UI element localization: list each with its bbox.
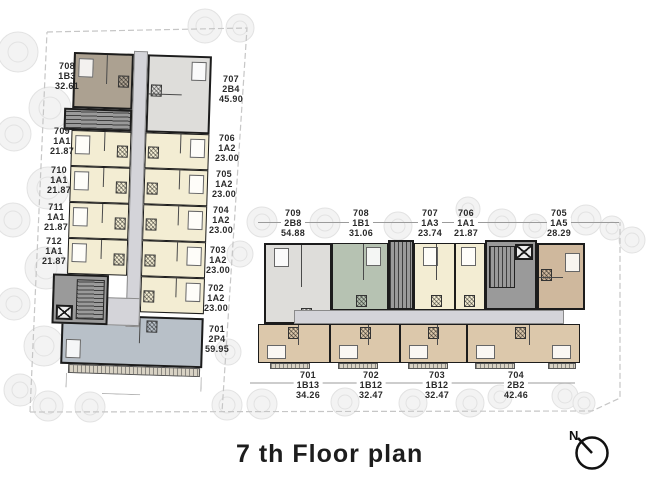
unit-712-plan xyxy=(67,238,128,276)
wing-elevator-core xyxy=(485,240,537,310)
unit-type: 2B4 xyxy=(219,84,243,94)
unit-703L-plan xyxy=(141,240,206,278)
unit-area: 54.88 xyxy=(281,228,305,238)
unit-type: 1B1 xyxy=(349,218,373,228)
page-title: 7 th Floor plan xyxy=(236,440,423,469)
unit-type: 1A2 xyxy=(204,293,228,303)
unit-no: 707 xyxy=(219,74,243,84)
unit-type: 1A2 xyxy=(215,143,239,153)
unit-area: 21.87 xyxy=(47,185,71,195)
left-tower xyxy=(63,52,212,396)
unit-area: 21.87 xyxy=(50,146,74,156)
unit-no: 708 xyxy=(349,208,373,218)
unit-707R-plan xyxy=(414,243,455,310)
tree-icon xyxy=(456,389,484,417)
right-wing xyxy=(264,238,588,369)
tree-icon xyxy=(75,392,105,422)
unit-705L-plan xyxy=(143,168,208,206)
unit-label-707R: 707 1A3 23.74 xyxy=(418,208,442,238)
unit-area: 59.95 xyxy=(205,344,229,354)
wing-balcony xyxy=(408,363,448,369)
unit-area: 21.87 xyxy=(454,228,478,238)
unit-no: 709 xyxy=(50,126,74,136)
unit-type: 2B2 xyxy=(504,380,528,390)
unit-no: 704 xyxy=(209,205,233,215)
unit-area: 23.00 xyxy=(209,225,233,235)
north-compass-icon: N xyxy=(565,426,617,478)
unit-no: 702 xyxy=(357,370,386,380)
unit-area: 23.00 xyxy=(212,189,236,199)
unit-705R-plan xyxy=(537,243,585,310)
wing-balcony xyxy=(548,363,576,369)
unit-area: 23.74 xyxy=(418,228,442,238)
unit-area: 32.61 xyxy=(55,81,79,91)
unit-label-705R: 705 1A5 28.29 xyxy=(547,208,571,238)
unit-label-706R: 706 1A1 21.87 xyxy=(454,208,478,238)
unit-label-704R: 704 2B2 42.46 xyxy=(504,370,528,400)
unit-703R-plan xyxy=(400,324,467,363)
tower-core-stairs xyxy=(76,279,105,320)
wing-core-stairs xyxy=(489,246,515,288)
tree-icon xyxy=(0,117,31,151)
unit-area: 28.29 xyxy=(547,228,571,238)
unit-type: 1B13 xyxy=(294,380,323,390)
unit-area: 21.87 xyxy=(44,222,68,232)
wing-stair-core xyxy=(388,240,414,310)
tree-icon xyxy=(227,241,253,267)
unit-label-702L: 702 1A2 23.00 xyxy=(204,283,228,313)
unit-704R-plan xyxy=(467,324,580,363)
tree-icon xyxy=(0,32,38,72)
unit-type: 1B12 xyxy=(357,380,386,390)
unit-label-709: 709 1A1 21.87 xyxy=(50,126,74,156)
wing-elevator xyxy=(515,244,533,260)
unit-type: 1A1 xyxy=(44,212,68,222)
unit-708R-plan xyxy=(332,243,388,310)
unit-no: 701 xyxy=(205,324,229,334)
tree-icon xyxy=(523,214,547,238)
compass-north-label: N xyxy=(569,428,578,443)
tower-core xyxy=(51,273,109,325)
unit-area: 32.47 xyxy=(357,390,386,400)
unit-area: 42.46 xyxy=(504,390,528,400)
unit-no: 704 xyxy=(504,370,528,380)
wing-corridor xyxy=(294,310,564,324)
tree-icon xyxy=(619,227,645,253)
unit-label-706L: 706 1A2 23.00 xyxy=(215,133,239,163)
unit-area: 32.47 xyxy=(423,390,452,400)
unit-no: 701 xyxy=(294,370,323,380)
unit-label-708R: 708 1B1 31.06 xyxy=(349,208,373,238)
unit-no: 706 xyxy=(215,133,239,143)
unit-711-plan xyxy=(68,202,129,240)
unit-702L-plan xyxy=(140,276,205,314)
tree-icon xyxy=(33,391,63,421)
tree-icon xyxy=(24,326,64,366)
unit-no: 711 xyxy=(44,202,68,212)
tree-icon xyxy=(0,203,30,237)
unit-label-703L: 703 1A2 23.00 xyxy=(206,245,230,275)
unit-type: 1A1 xyxy=(47,175,71,185)
unit-708-plan xyxy=(72,52,134,110)
unit-type: 2P4 xyxy=(205,334,229,344)
unit-area: 31.06 xyxy=(349,228,373,238)
unit-area: 23.00 xyxy=(215,153,239,163)
unit-label-702R: 702 1B12 32.47 xyxy=(357,370,386,400)
unit-type: 2B8 xyxy=(281,218,305,228)
unit-no: 707 xyxy=(418,208,442,218)
unit-label-707L: 707 2B4 45.90 xyxy=(219,74,243,104)
unit-no: 708 xyxy=(55,61,79,71)
unit-type: 1A3 xyxy=(418,218,442,228)
wing-balcony xyxy=(270,363,310,369)
unit-type: 1A2 xyxy=(206,255,230,265)
unit-702R-plan xyxy=(330,324,400,363)
unit-label-708: 708 1B3 32.61 xyxy=(55,61,79,91)
unit-label-701L: 701 2P4 59.95 xyxy=(205,324,229,354)
unit-type: 1A1 xyxy=(42,246,66,256)
tree-icon xyxy=(384,212,412,240)
unit-area: 34.26 xyxy=(294,390,323,400)
unit-no: 705 xyxy=(547,208,571,218)
tree-icon xyxy=(247,389,277,419)
wing-balcony xyxy=(338,363,378,369)
tree-icon xyxy=(0,288,30,320)
unit-label-701R: 701 1B13 34.26 xyxy=(294,370,323,400)
unit-706R-plan xyxy=(455,243,485,310)
unit-type: 1A1 xyxy=(50,136,74,146)
unit-label-704L: 704 1A2 23.00 xyxy=(209,205,233,235)
unit-no: 709 xyxy=(281,208,305,218)
tree-icon xyxy=(188,9,222,43)
unit-706L-plan xyxy=(144,132,209,170)
unit-701R-plan xyxy=(258,324,330,363)
unit-type: 1B12 xyxy=(423,380,452,390)
unit-type: 1B3 xyxy=(55,71,79,81)
wing-balcony xyxy=(475,363,515,369)
unit-area: 45.90 xyxy=(219,94,243,104)
unit-707L-plan xyxy=(146,54,212,134)
unit-704L-plan xyxy=(142,204,207,242)
unit-label-712: 712 1A1 21.87 xyxy=(42,236,66,266)
tree-icon xyxy=(571,205,601,235)
unit-type: 1A2 xyxy=(209,215,233,225)
unit-no: 703 xyxy=(423,370,452,380)
tower-elevator xyxy=(56,305,73,321)
unit-type: 1A1 xyxy=(454,218,478,228)
unit-no: 710 xyxy=(47,165,71,175)
floor-plan-canvas: 708 1B3 32.61 709 1A1 21.87 710 1A1 21.8… xyxy=(0,0,650,484)
unit-type: 1A2 xyxy=(212,179,236,189)
unit-area: 23.00 xyxy=(204,303,228,313)
unit-no: 705 xyxy=(212,169,236,179)
unit-label-705L: 705 1A2 23.00 xyxy=(212,169,236,199)
unit-type: 1A5 xyxy=(547,218,571,228)
unit-no: 702 xyxy=(204,283,228,293)
unit-no: 706 xyxy=(454,208,478,218)
unit-label-710: 710 1A1 21.87 xyxy=(47,165,71,195)
unit-710-plan xyxy=(69,166,130,204)
unit-no: 712 xyxy=(42,236,66,246)
unit-area: 23.00 xyxy=(206,265,230,275)
unit-709-plan xyxy=(70,130,131,168)
unit-no: 703 xyxy=(206,245,230,255)
unit-area: 21.87 xyxy=(42,256,66,266)
unit-label-711: 711 1A1 21.87 xyxy=(44,202,68,232)
tree-icon xyxy=(212,390,242,420)
unit-label-709R: 709 2B8 54.88 xyxy=(281,208,305,238)
unit-label-703R: 703 1B12 32.47 xyxy=(423,370,452,400)
